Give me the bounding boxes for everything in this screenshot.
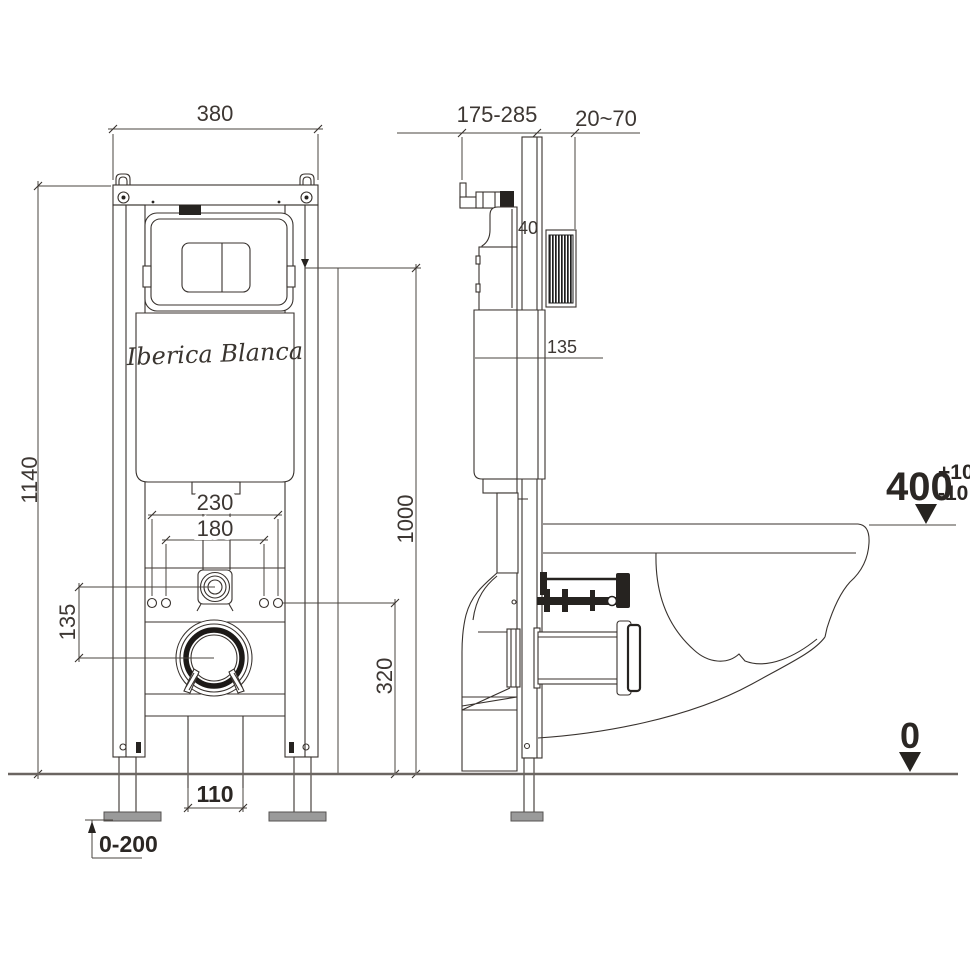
floor-level-label: 0 xyxy=(900,715,920,756)
fixing-outer-label: 230 xyxy=(197,490,234,515)
dim-drain-height: 320 xyxy=(372,599,399,778)
dim-frame-height: 1140 xyxy=(17,181,111,779)
bracket-depth-label: 175-285 xyxy=(457,102,538,127)
dim-frame-width: 380 xyxy=(108,101,323,180)
datum-floor-level: 0 xyxy=(899,715,921,772)
inlet-drain-offset-label: 135 xyxy=(55,604,80,641)
dim-bracket-width: 110 xyxy=(184,716,247,812)
water-inlet-fitting xyxy=(197,570,233,611)
dim-bracket-depth: 175-285 20~70 xyxy=(397,102,640,229)
front-view: 380 1140 xyxy=(17,101,421,858)
fixing-bolts xyxy=(148,599,396,608)
rim-tol-plus-label: +10 xyxy=(938,461,970,484)
bracket-width-label: 110 xyxy=(196,781,233,807)
outlet-flange xyxy=(628,625,640,691)
washer-icon xyxy=(608,597,617,606)
flush-plate-side xyxy=(546,230,576,307)
hanger-tab xyxy=(300,174,314,185)
installation-diagram: 380 1140 xyxy=(0,0,970,970)
technical-drawing-page: 380 1140 xyxy=(0,0,970,970)
plate-recess-label: 40 xyxy=(518,218,538,238)
datum-triangle-icon xyxy=(301,259,309,268)
leg-foot xyxy=(294,757,311,814)
rim-tol-minus-label: -10 xyxy=(938,482,968,505)
side-view: 175-285 20~70 xyxy=(397,102,970,821)
drain-height-label: 320 xyxy=(372,658,397,695)
frame-height-label: 1140 xyxy=(17,456,42,503)
dim-leg-adjust: 0-200 xyxy=(85,820,158,858)
wall-finish-label: 20~70 xyxy=(575,106,637,131)
flush-pipe xyxy=(497,493,518,573)
wall-bracket xyxy=(460,183,514,209)
tank-reference-label: 135 xyxy=(547,337,577,357)
datum-rim-height: 400 +10 -10 xyxy=(869,461,970,525)
fixing-rod xyxy=(537,572,630,612)
foot-plate xyxy=(269,812,326,821)
plate-clip xyxy=(179,205,201,215)
dim-actuator-height: 1000 xyxy=(301,259,421,778)
leg-foot xyxy=(119,757,136,814)
leg-adjust-label: 0-200 xyxy=(99,831,158,857)
arrow-up-icon xyxy=(88,821,96,833)
fixing-inner-label: 180 xyxy=(197,516,234,541)
actuator-height-label: 1000 xyxy=(393,495,418,544)
hanger-tab xyxy=(116,174,130,185)
flush-plate xyxy=(143,205,295,311)
toilet-bowl xyxy=(538,524,869,738)
foot-plate xyxy=(511,812,543,821)
frame-width-label: 380 xyxy=(197,101,234,126)
